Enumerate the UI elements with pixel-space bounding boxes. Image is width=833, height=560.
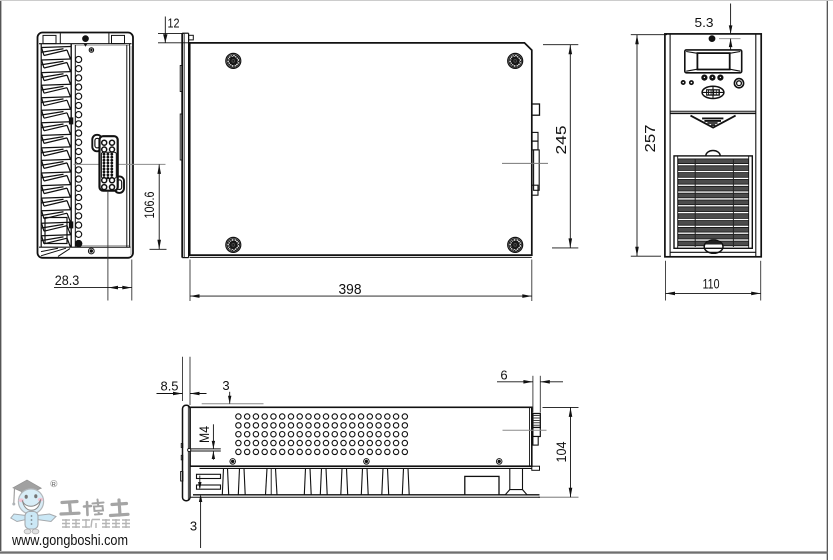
svg-text:www.gongboshi.com: www.gongboshi.com xyxy=(11,532,128,549)
svg-text:6: 6 xyxy=(500,367,507,382)
svg-text:245: 245 xyxy=(553,126,570,155)
svg-text:106.6: 106.6 xyxy=(142,192,157,219)
svg-text:3: 3 xyxy=(190,519,197,534)
svg-text:3: 3 xyxy=(222,378,229,393)
svg-text:257: 257 xyxy=(642,125,659,153)
svg-text:28.3: 28.3 xyxy=(55,273,80,288)
svg-text:R: R xyxy=(52,482,56,488)
svg-text:104: 104 xyxy=(554,441,569,462)
svg-text:110: 110 xyxy=(703,275,720,291)
svg-text:M4: M4 xyxy=(197,426,212,443)
svg-text:12: 12 xyxy=(168,16,180,31)
svg-text:5.3: 5.3 xyxy=(695,15,714,30)
svg-text:8.5: 8.5 xyxy=(161,378,179,393)
svg-text:398: 398 xyxy=(339,282,362,298)
